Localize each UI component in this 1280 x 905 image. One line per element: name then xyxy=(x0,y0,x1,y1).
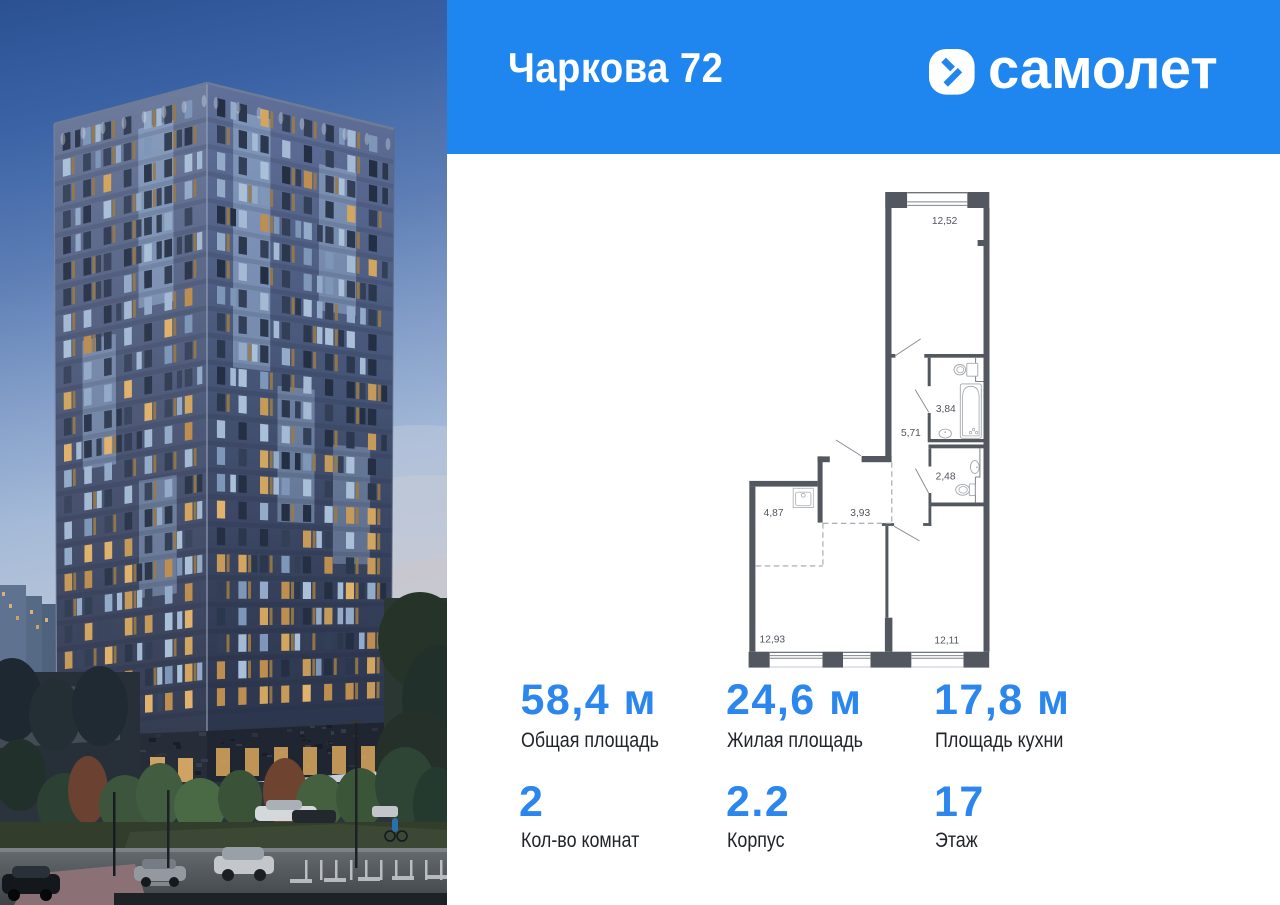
svg-text:12,52: 12,52 xyxy=(932,216,958,227)
svg-text:2,48: 2,48 xyxy=(936,472,956,483)
svg-text:12,11: 12,11 xyxy=(934,636,959,647)
svg-text:3,93: 3,93 xyxy=(850,508,870,519)
svg-text:3,84: 3,84 xyxy=(936,404,956,415)
svg-text:4,87: 4,87 xyxy=(764,508,784,519)
svg-text:12,93: 12,93 xyxy=(760,635,786,646)
svg-text:5,71: 5,71 xyxy=(901,428,921,439)
